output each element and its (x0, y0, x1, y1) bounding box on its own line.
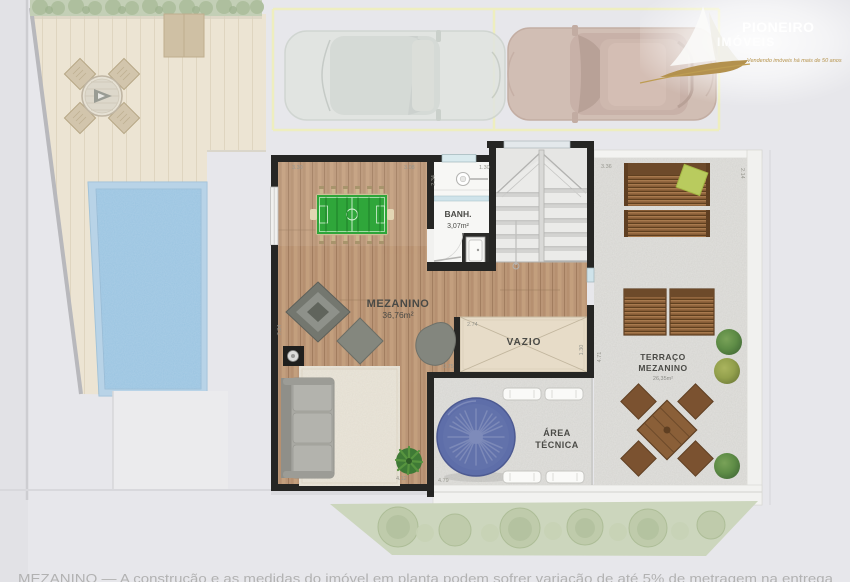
svg-text:ÁREA: ÁREA (543, 428, 571, 438)
svg-text:4.71: 4.71 (597, 352, 603, 363)
svg-text:VAZIO: VAZIO (507, 337, 542, 348)
svg-text:1.30: 1.30 (479, 165, 490, 171)
svg-text:MEZANINO: MEZANINO (638, 363, 687, 373)
svg-text:36,76m²: 36,76m² (382, 310, 413, 320)
svg-text:3,07m²: 3,07m² (447, 223, 469, 230)
svg-text:4.79: 4.79 (438, 478, 449, 484)
svg-text:MEZANINO — A construção e as m: MEZANINO — A construção e as medidas do … (18, 571, 834, 582)
svg-text:1.30: 1.30 (579, 345, 585, 356)
svg-text:BANH.: BANH. (445, 209, 472, 219)
svg-text:IMÓVEIS: IMÓVEIS (717, 34, 775, 49)
svg-text:MEZANINO: MEZANINO (367, 298, 430, 310)
svg-text:2.14: 2.14 (739, 168, 745, 179)
svg-text:3.30: 3.30 (292, 165, 303, 171)
svg-text:0.75: 0.75 (443, 364, 454, 370)
svg-text:7.34: 7.34 (277, 325, 283, 336)
svg-text:TERRAÇO: TERRAÇO (640, 352, 686, 362)
svg-text:Vendendo imóveis há mais de 50: Vendendo imóveis há mais de 50 anos (747, 58, 842, 64)
svg-text:PIONEIRO: PIONEIRO (742, 19, 814, 35)
svg-text:2.34: 2.34 (431, 175, 437, 186)
svg-text:TÉCNICA: TÉCNICA (535, 440, 579, 450)
svg-text:4.12: 4.12 (396, 476, 407, 482)
svg-text:2.74: 2.74 (467, 322, 478, 328)
svg-text:26,35m²: 26,35m² (653, 376, 673, 382)
svg-text:3.36: 3.36 (601, 164, 612, 170)
svg-text:3.08: 3.08 (404, 165, 415, 171)
